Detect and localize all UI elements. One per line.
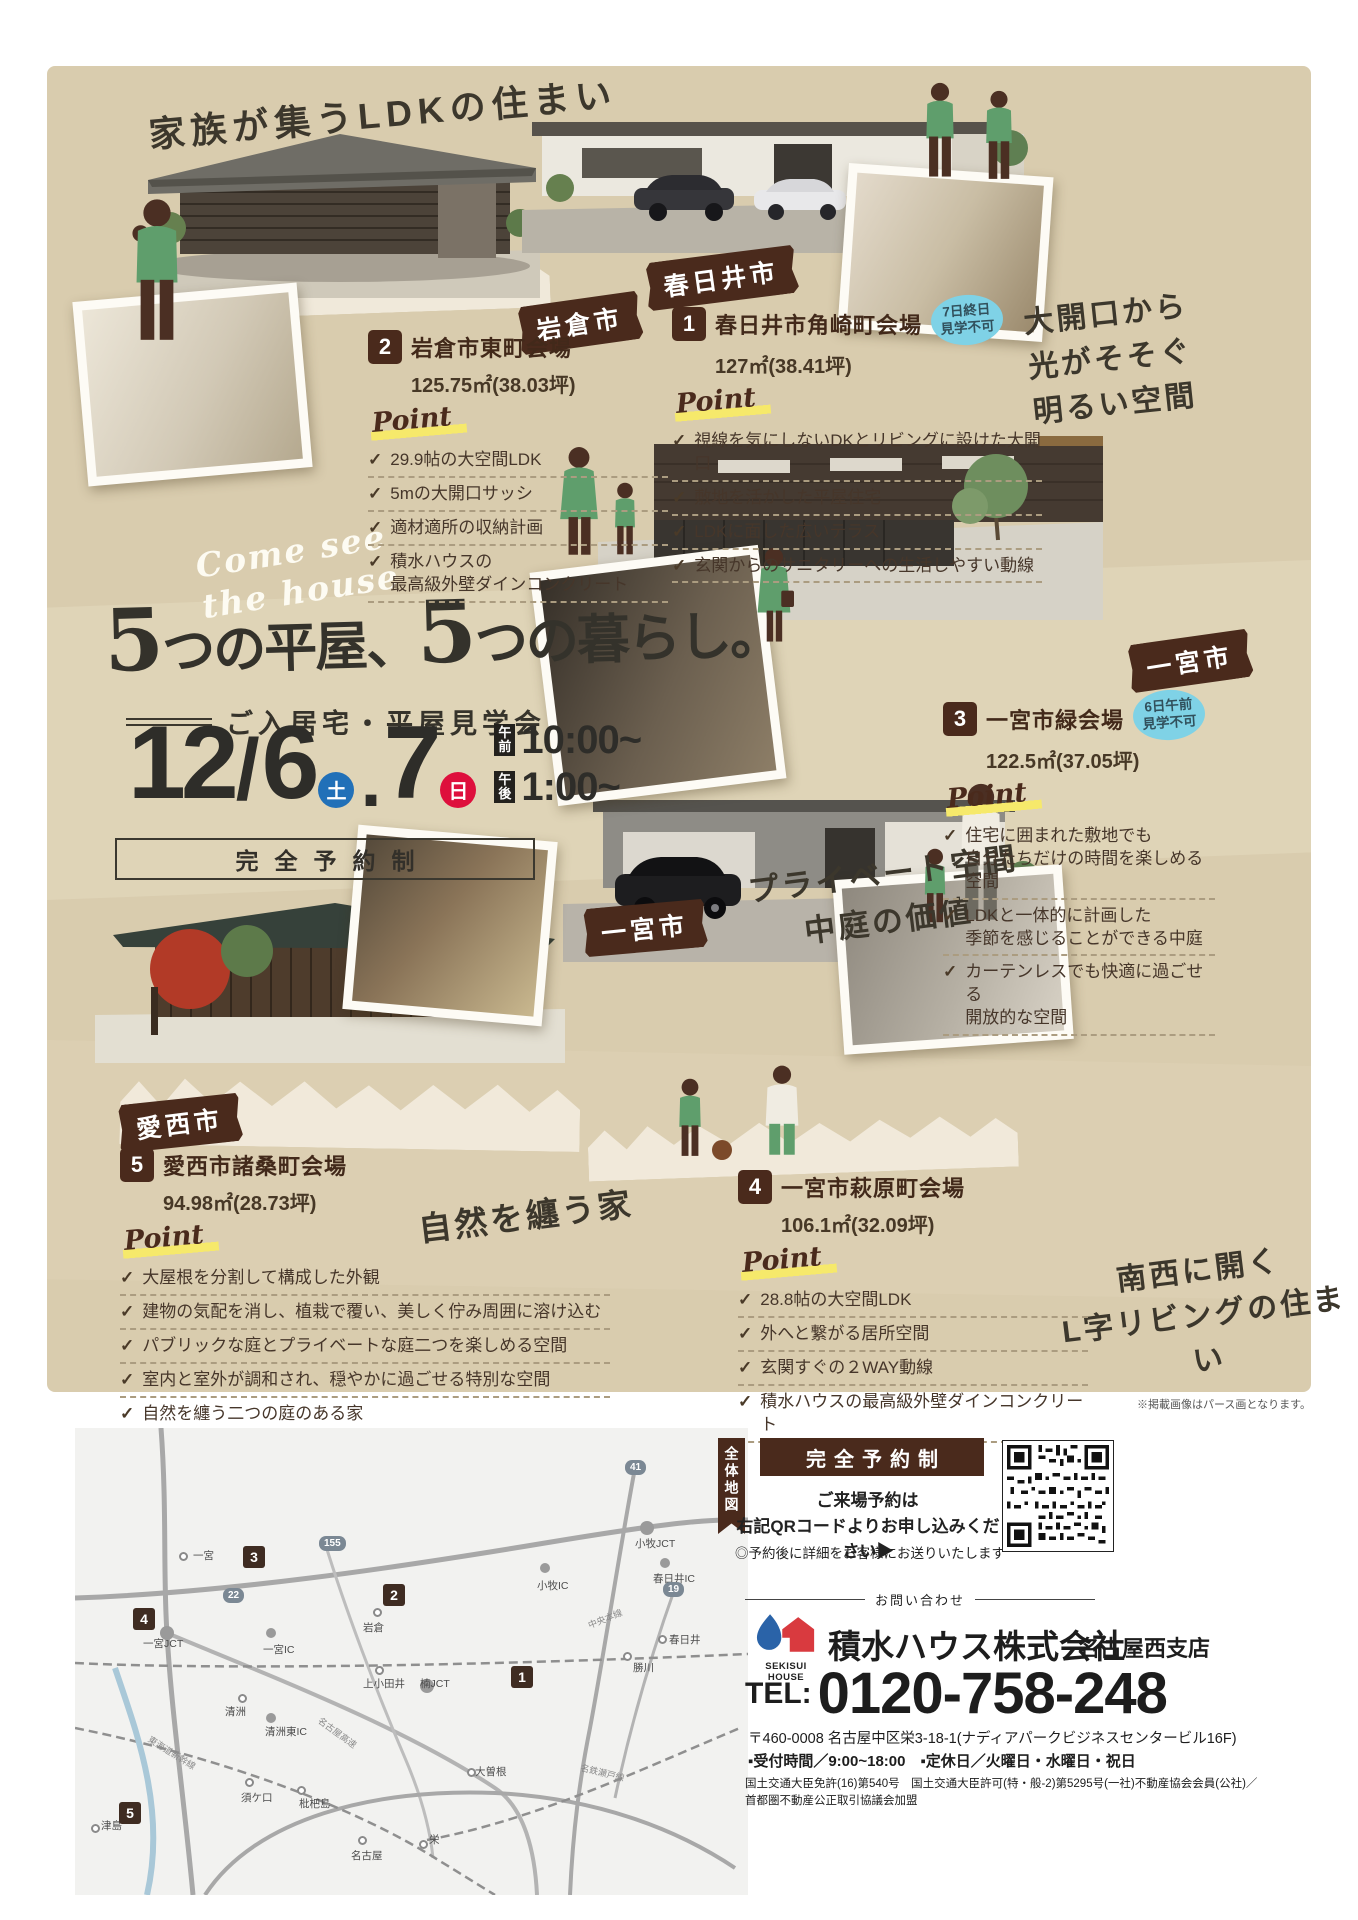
point-label: Point — [121, 1218, 220, 1260]
map-marker-4: 4 — [133, 1608, 155, 1630]
area-map: 一宮 一宮JCT 一宮IC 岩倉 小牧IC 小牧JCT 春日井IC 春日井 勝川… — [75, 1428, 748, 1895]
phone-row: TEL: 0120-758-248 — [745, 1660, 1167, 1727]
point-list: 視線を気にしないDKとリビングに設けた大開口 敷地を活かした平屋住宅 LDKに面… — [672, 425, 1042, 584]
venue-number-badge: 1 — [672, 307, 706, 341]
am-label: 午前 — [494, 724, 515, 757]
map-label: 名古屋 — [351, 1848, 383, 1863]
booking-note: ◎予約後に詳細をお客様にお送りいたします — [730, 1542, 1010, 1562]
station-dot — [358, 1836, 367, 1845]
point-item: パブリックな庭とプライベートな庭二つを楽しめる空間 — [120, 1330, 610, 1364]
station-dot — [238, 1694, 247, 1703]
child-illustration — [672, 1078, 708, 1162]
point-list: 28.8帖の大空間LDK 外へと繋がる居所空間 玄関すぐの２WAY動線 積水ハウ… — [738, 1284, 1088, 1443]
sunday-badge: 日 — [440, 772, 476, 808]
venue-number-badge: 3 — [943, 702, 977, 736]
flyer-page: 春日井市 岩倉市 一宮市 一宮市 愛西市 家族が集うLDKの住まい 大開口から … — [0, 0, 1358, 1920]
route-shield: 41 — [625, 1460, 646, 1475]
venue-number-badge: 5 — [120, 1148, 154, 1182]
route-shield: 19 — [663, 1582, 684, 1597]
station-dot — [623, 1652, 632, 1661]
point-item: 5mの大開口サッシ — [368, 478, 668, 512]
station-dot — [179, 1552, 188, 1561]
venue-number-badge: 2 — [368, 330, 402, 364]
venue-card-2: 2 岩倉市東町会場 125.75㎡(38.03坪) Point 29.9帖の大空… — [368, 330, 668, 603]
point-label: Point — [673, 381, 772, 423]
image-disclaimer: ※掲載画像はパース画となります。 — [1020, 1396, 1311, 1412]
station-dot — [375, 1666, 384, 1675]
map-label: 大曽根 — [475, 1764, 507, 1779]
map-marker-3: 3 — [243, 1546, 265, 1568]
point-item: 室内と室外が調和され、穏やかに過ごせる特別な空間 — [120, 1364, 610, 1398]
point-item: 28.8帖の大空間LDK — [738, 1284, 1088, 1318]
venue-name: 愛西市諸桑町会場 — [163, 1149, 347, 1181]
point-item: 積水ハウスの 最高級外壁ダインコンクリート — [368, 546, 668, 603]
point-item: 29.9帖の大空間LDK — [368, 444, 668, 478]
address: 〒460-0008 名古屋中区栄3-18-1(ナディアパークビジネスセンタービル… — [748, 1727, 1237, 1748]
venue-name: 春日井市角崎町会場 — [715, 308, 922, 340]
point-item: 視線を気にしないDKとリビングに設けた大開口 — [672, 425, 1042, 482]
branch-name: 名古屋西支店 — [1078, 1631, 1210, 1663]
point-list: 29.9帖の大空間LDK 5mの大開口サッシ 適材適所の収納計画 積水ハウスの … — [368, 444, 668, 603]
license-text: 国土交通大臣免許(16)第540号 国土交通大臣許可(特・般-2)第5295号(… — [745, 1776, 1257, 1811]
venue-name: 一宮市萩原町会場 — [781, 1171, 965, 1203]
route-shield: 155 — [319, 1536, 346, 1551]
logo-mark-icon — [756, 1612, 816, 1654]
station-dot — [91, 1824, 100, 1833]
point-item: 敷地を活かした平屋住宅 — [672, 482, 1042, 516]
inquiry-label: お問い合わせ — [875, 1590, 965, 1609]
point-label: Point — [944, 776, 1043, 818]
map-label: 須ケ口 — [241, 1790, 273, 1805]
note-kasugai: 大開口から 光がそそぐ 明るい空間 — [1021, 284, 1199, 436]
map-label: 栄 — [429, 1832, 440, 1847]
venue-name: 岩倉市東町会場 — [411, 331, 572, 363]
point-item: 玄関すぐの２WAY動線 — [738, 1352, 1088, 1386]
phone-number: 0120-758-248 — [818, 1660, 1167, 1727]
pm-label: 午後 — [494, 771, 515, 804]
event-times: 午前10:00~ 午後1:00~ — [494, 718, 641, 810]
map-label: 春日井 — [669, 1632, 701, 1647]
venue-area: 127㎡(38.41坪) — [715, 350, 1042, 379]
person-illustration — [978, 90, 1020, 184]
venue-area: 106.1㎡(32.09坪) — [781, 1209, 1088, 1238]
map-label: 清洲 — [225, 1704, 246, 1719]
map-label: 勝川 — [633, 1660, 654, 1675]
qr-code — [1002, 1440, 1114, 1552]
map-label: 枇杷島 — [299, 1796, 331, 1811]
station-dot — [297, 1786, 306, 1795]
point-item: 自然を纏う二つの庭のある家 — [120, 1398, 610, 1432]
map-label: 岩倉 — [363, 1620, 384, 1635]
station-dot — [658, 1635, 667, 1644]
map-marker-5: 5 — [119, 1802, 141, 1824]
reservation-required-footer: 完全予約制 — [760, 1438, 984, 1476]
person-illustration — [127, 198, 187, 348]
map-label: 一宮IC — [263, 1642, 295, 1657]
person-illustration — [756, 1062, 808, 1162]
point-item: カーテンレスでも快適に過ごせる 開放的な空間 — [943, 956, 1215, 1036]
map-marker-1: 1 — [511, 1666, 533, 1688]
point-item: 玄関からのサニタリーへの生活しやすい動線 — [672, 550, 1042, 584]
point-item: 建物の気配を消し、植栽で覆い、美しく佇み周囲に溶け込む — [120, 1296, 610, 1330]
reservation-required-box: 完全予約制 — [115, 838, 535, 880]
point-label: Point — [739, 1240, 838, 1282]
map-label: 楠JCT — [420, 1676, 450, 1691]
inquiry-divider: お問い合わせ — [745, 1590, 1095, 1609]
map-label: 小牧JCT — [635, 1536, 675, 1551]
venue-area: 125.75㎡(38.03坪) — [411, 369, 668, 398]
station-dot — [373, 1608, 382, 1617]
venue-number-badge: 4 — [738, 1170, 772, 1204]
map-label: 一宮JCT — [143, 1636, 183, 1651]
map-label: 清洲東IC — [265, 1724, 307, 1739]
venue-card-3: 3 一宮市緑会場 6日午前 見学不可 122.5㎡(37.05坪) Point … — [943, 698, 1215, 1036]
venue-area: 122.5㎡(37.05坪) — [986, 745, 1215, 774]
route-shield: 22 — [223, 1588, 244, 1603]
venue-card-5: 5 愛西市諸桑町会場 94.98㎡(28.73坪) Point 大屋根を分割して… — [120, 1148, 610, 1432]
title-number: 5 — [103, 589, 163, 691]
point-item: 大屋根を分割して構成した外観 — [120, 1262, 610, 1296]
map-label: 一宮 — [193, 1548, 214, 1563]
map-label: 小牧IC — [537, 1578, 569, 1593]
person-illustration — [918, 82, 962, 182]
point-item: 適材適所の収納計画 — [368, 512, 668, 546]
point-list: 大屋根を分割して構成した外観 建物の気配を消し、植栽で覆い、美しく佇み周囲に溶け… — [120, 1262, 610, 1432]
venue-card-1: 1 春日井市角崎町会場 7日終日 見学不可 127㎡(38.41坪) Point… — [672, 303, 1042, 583]
station-dot — [245, 1778, 254, 1787]
point-item: 外へと繋がる居所空間 — [738, 1318, 1088, 1352]
map-marker-2: 2 — [383, 1584, 405, 1606]
point-list: 住宅に囲まれた敷地でも 自分たちだけの時間を楽しめる空間 LDKと一体的に計画し… — [943, 820, 1215, 1037]
booking-line1: ご来場予約は — [745, 1486, 990, 1511]
interior-photo-iwakura — [72, 283, 312, 487]
ball-illustration — [712, 1140, 732, 1160]
point-item: 積水ハウスの最高級外壁ダインコンクリート — [738, 1386, 1088, 1443]
point-item: LDKに面した広いテラス — [672, 516, 1042, 550]
point-label: Point — [369, 400, 468, 442]
venue-area: 94.98㎡(28.73坪) — [163, 1187, 610, 1216]
event-date: 12 / 6 土 . 7 日 午前10:00~ 午後1:00~ — [128, 716, 641, 812]
point-item: 住宅に囲まれた敷地でも 自分たちだけの時間を楽しめる空間 — [943, 820, 1215, 900]
point-item: LDKと一体的に計画した 季節を感じることができる中庭 — [943, 900, 1215, 957]
saturday-badge: 土 — [318, 772, 354, 808]
tel-label: TEL: — [745, 1677, 812, 1711]
station-dot — [419, 1840, 428, 1849]
map-label: 上小田井 — [363, 1676, 405, 1691]
venue-name: 一宮市緑会場 — [986, 703, 1124, 735]
business-hours: ▪受付時間／9:00~18:00 ▪定休日／火曜日・水曜日・祝日 — [748, 1750, 1136, 1771]
